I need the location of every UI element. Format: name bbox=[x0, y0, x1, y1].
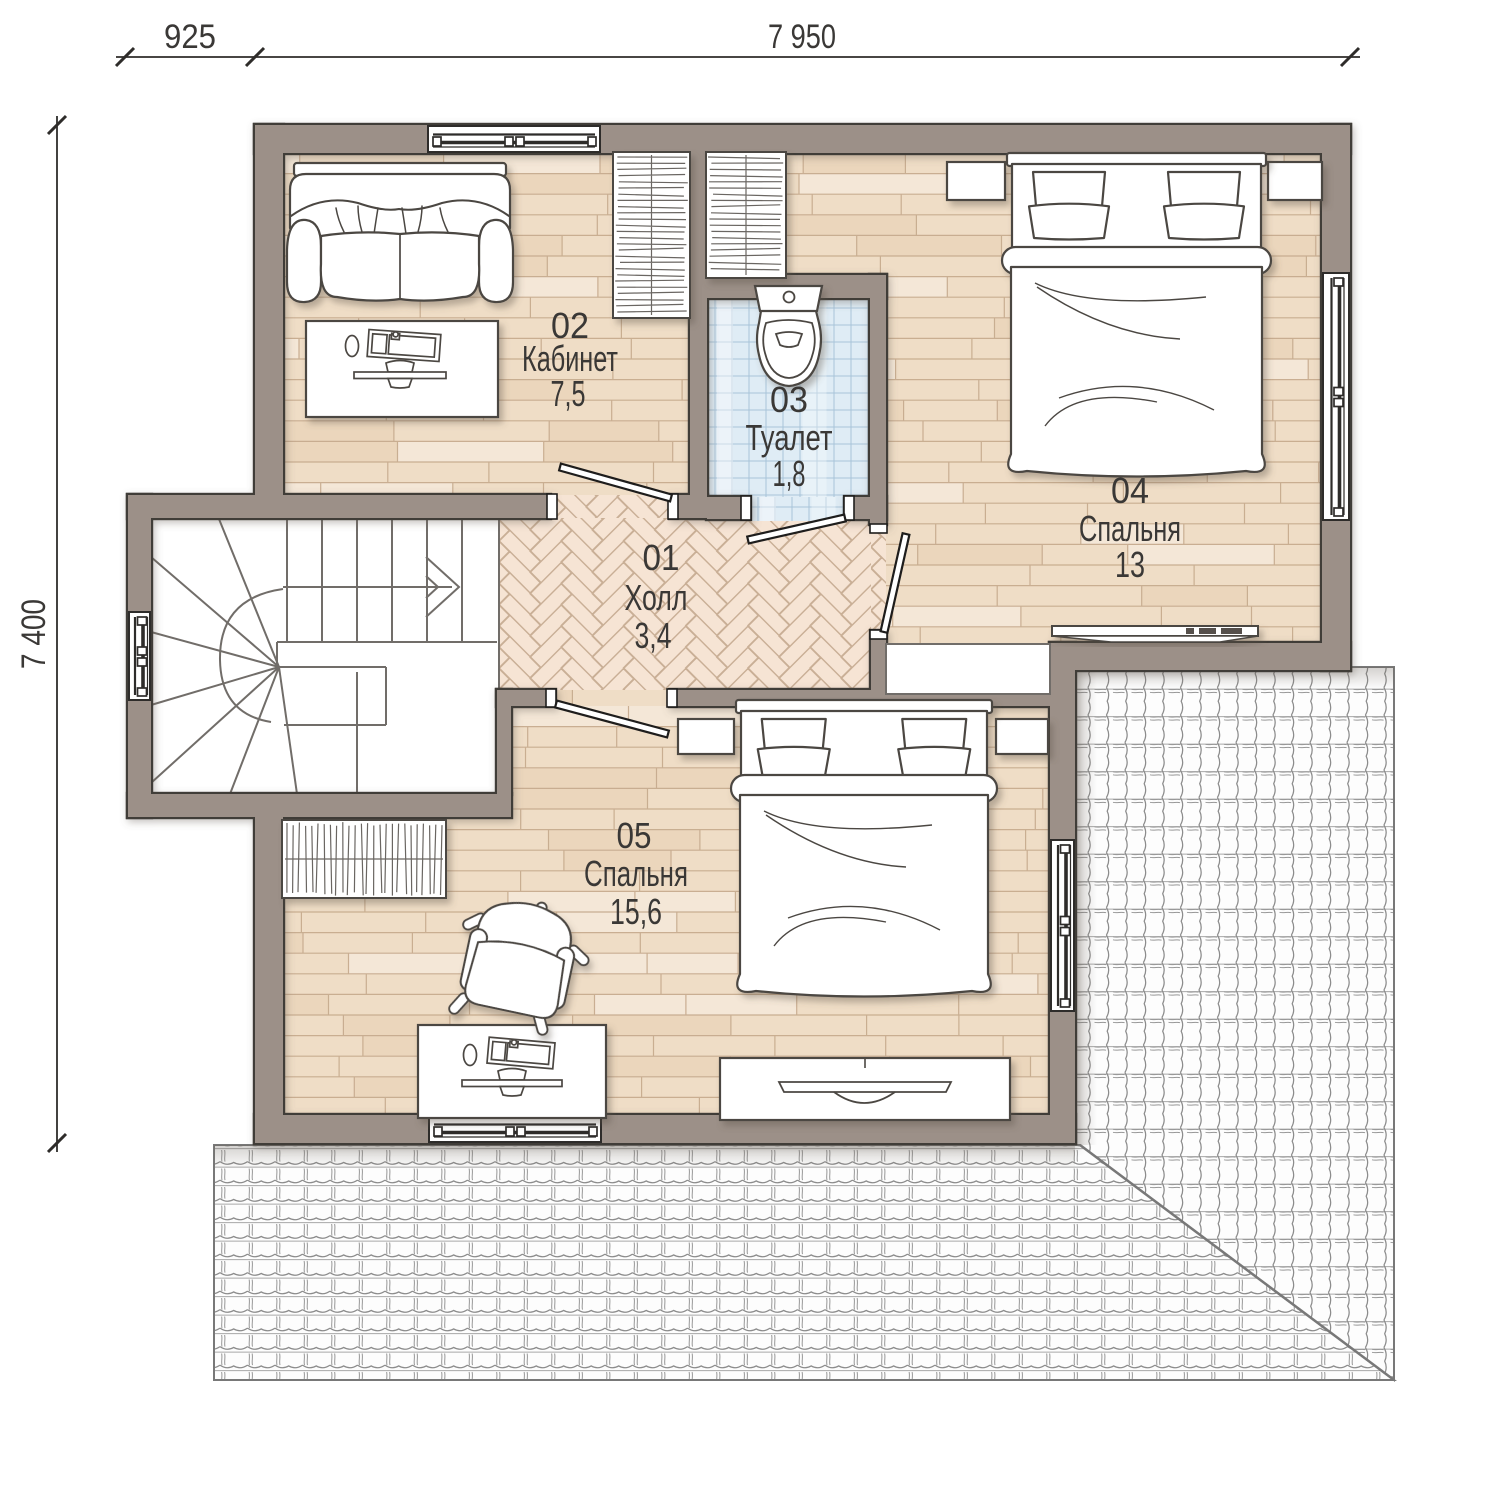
svg-text:3,4: 3,4 bbox=[635, 615, 672, 656]
svg-text:Спальня: Спальня bbox=[584, 853, 688, 894]
svg-text:Спальня: Спальня bbox=[1079, 508, 1181, 549]
svg-text:13: 13 bbox=[1115, 544, 1145, 585]
svg-text:03: 03 bbox=[770, 379, 808, 420]
svg-text:05: 05 bbox=[617, 815, 652, 856]
svg-text:04: 04 bbox=[1111, 470, 1149, 511]
svg-text:01: 01 bbox=[643, 537, 680, 578]
svg-text:Туалет: Туалет bbox=[746, 417, 833, 458]
svg-text:7 950: 7 950 bbox=[768, 18, 836, 56]
svg-text:15,6: 15,6 bbox=[610, 891, 662, 932]
svg-text:925: 925 bbox=[164, 18, 216, 56]
svg-text:7 400: 7 400 bbox=[15, 599, 53, 669]
svg-text:1,8: 1,8 bbox=[773, 453, 806, 494]
svg-text:Холл: Холл bbox=[625, 577, 688, 618]
svg-text:7,5: 7,5 bbox=[551, 373, 586, 414]
